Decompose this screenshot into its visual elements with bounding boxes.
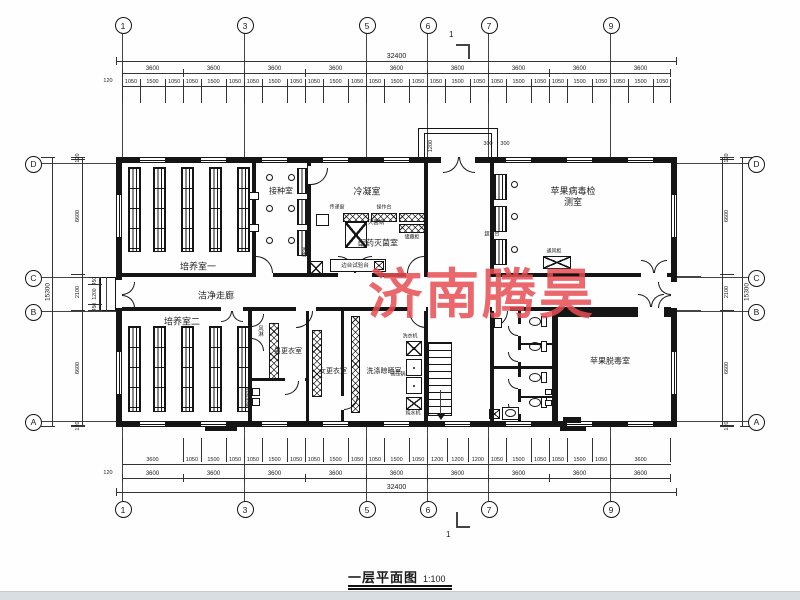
title-underline — [348, 585, 452, 587]
dimension-segment: 1050 — [165, 77, 183, 87]
door-opening — [338, 273, 372, 277]
dimension-value: 3600 — [634, 471, 647, 477]
culture-rack — [128, 326, 141, 412]
dimension-segment: 3600 — [610, 469, 671, 479]
grid-bubble-top: 6 — [420, 17, 437, 34]
window — [567, 157, 592, 163]
dimension-value: 15300 — [45, 283, 52, 301]
grid-bubble-top: 3 — [237, 17, 254, 34]
stool — [288, 205, 295, 212]
dimension-value: 300 — [483, 141, 492, 147]
dimension-value: 1050 — [491, 79, 503, 85]
locker-women — [312, 330, 322, 397]
grid-bubble-bottom: 5 — [359, 501, 376, 518]
equipment-label-washer: 洗衣机 — [402, 333, 417, 340]
dimension-value: 1050 — [247, 457, 259, 463]
men-change-door-arc — [285, 381, 299, 395]
dimension-value: 1050 — [595, 457, 607, 463]
dimension-value: 1050 — [229, 457, 241, 463]
dimension-value: 1050 — [290, 457, 302, 463]
grid-bubble-top: 7 — [481, 17, 498, 34]
room-label-condensing: 冷凝室 — [353, 185, 380, 198]
equipment-label-storage-cabinet: 储藏柜 — [404, 234, 419, 241]
pass-window-box — [316, 214, 329, 226]
dimension-column: 120660021006600120 — [74, 157, 82, 427]
dimension-value: 1050 — [351, 457, 363, 463]
grid-bubble-bottom: 3 — [237, 501, 254, 518]
inoculation-door-arc — [256, 256, 273, 273]
dimension-segment: 1050 — [183, 77, 201, 87]
stair-arrow-head — [437, 414, 445, 420]
dimension-segment: 3600 — [122, 455, 183, 465]
dimension-segment: 3600 — [366, 64, 427, 74]
dimension-value: 3600 — [268, 471, 281, 477]
dimension-segment: 1050 — [409, 455, 427, 465]
dimension-value: 450 — [92, 303, 98, 311]
dimension-row: 3600105015001050105015001050105015001050… — [122, 455, 671, 464]
dimension-segment: 1500 — [201, 77, 226, 87]
dimension-segment: 1050 — [610, 77, 628, 87]
window — [262, 421, 287, 427]
room-label-air-shower: 风淋 — [256, 326, 264, 337]
dimension-segment: 1050 — [226, 77, 244, 87]
dimension-segment: 3600 — [427, 64, 488, 74]
dimension-segment: 3600 — [427, 469, 488, 479]
dimension-value: 3600 — [634, 457, 646, 463]
pass-through-window — [249, 224, 259, 232]
dimension-segment: 2100 — [74, 274, 83, 310]
dimension-value: 15300 — [744, 283, 751, 301]
prep-bench — [399, 213, 425, 222]
dimension-segment: 120 — [74, 425, 83, 427]
wall-toilet-middle — [493, 366, 552, 369]
section-mark-bottom: 1 — [446, 530, 450, 539]
hand-sanitizer-unit — [252, 388, 260, 396]
grid-bubble-top: 5 — [359, 17, 376, 34]
dimension-segment: 1500 — [506, 77, 531, 87]
window — [262, 157, 287, 163]
dimension-segment: 1500 — [201, 455, 226, 465]
window — [506, 157, 531, 163]
hand-sanitizer-unit — [252, 398, 260, 406]
dimension-segment: 1050 — [122, 77, 140, 87]
dimension-segment: 3600 — [549, 64, 610, 74]
dimension-segment: 1050 — [653, 77, 671, 87]
dimension-value: 1200 — [472, 457, 484, 463]
dimension-column: 15300 — [44, 157, 52, 427]
equipment-label-sterilizer: 灭菌锅 — [368, 218, 385, 226]
equipment-label-pass-window: 传递窗 — [329, 204, 344, 211]
stall-door-arc — [508, 352, 518, 362]
dimension-value: 1500 — [512, 457, 524, 463]
stall-door-arc — [508, 379, 518, 389]
dimension-value: 1050 — [290, 79, 302, 85]
east-porch-line — [677, 310, 701, 311]
dimension-value: 120 — [75, 421, 81, 430]
grid-bubble-bottom: 7 — [481, 501, 498, 518]
dimension-value: 1500 — [268, 457, 280, 463]
dimension-value: 1050 — [491, 457, 503, 463]
section-flag-bottom — [456, 526, 470, 528]
dimension-segment: 3600 — [183, 469, 244, 479]
exterior-stoop — [205, 427, 237, 431]
room-label-virus-free: 苹果脱毒室 — [590, 356, 630, 367]
dimension-segment: 1050 — [592, 455, 610, 465]
dimension-segment: 32400 — [116, 483, 677, 493]
dimension-value: 1500 — [268, 79, 280, 85]
dimension-value: 3600 — [512, 471, 525, 477]
virus-free-door-arc — [638, 294, 651, 307]
dimension-segment: 1500 — [384, 77, 409, 87]
clean-bench-unit — [494, 174, 507, 200]
dimension-value: 3600 — [573, 471, 586, 477]
culture-rack — [181, 326, 194, 412]
toilet-bowl — [529, 342, 541, 351]
drawing-title: 一层平面图 — [348, 570, 418, 585]
window — [445, 421, 470, 427]
dimension-segment: 1500 — [262, 77, 287, 87]
grid-bubble-right: C — [748, 270, 765, 287]
dimension-value: 3600 — [329, 471, 342, 477]
dimension-value: 3600 — [390, 66, 403, 72]
dimension-segment: 1200 — [468, 455, 488, 465]
grid-bubble-right: B — [748, 304, 765, 321]
dimension-segment: 1050 — [348, 455, 366, 465]
dimension-row: 360036003600360036003600360036003600 — [122, 469, 671, 478]
door-opening — [256, 273, 273, 277]
dimension-column: 15300 — [742, 157, 750, 427]
window — [116, 195, 122, 237]
condensing-door-arc — [311, 168, 328, 185]
drawing-scale: 1:100 — [423, 574, 446, 584]
dimension-value: 1050 — [430, 79, 442, 85]
door-opening — [518, 350, 521, 362]
air-shower-curve — [251, 338, 264, 351]
autoclave-unit — [406, 377, 422, 394]
dimension-value: 1500 — [635, 79, 647, 85]
room-label-inoculation: 接种室 — [269, 186, 293, 197]
dimension-value: 3600 — [268, 66, 281, 72]
window — [628, 157, 653, 163]
water-purifier-unit — [406, 397, 422, 410]
dimension-segment: 1200 — [91, 284, 100, 303]
room-label-virus-test: 苹果病毒检测室 — [550, 186, 596, 209]
room-label-men-change: 男更衣室 — [274, 346, 302, 356]
dimension-segment: 450 — [91, 304, 100, 311]
virus-free-door-arc — [651, 294, 664, 307]
dimension-edge: 120 — [103, 470, 112, 476]
equipment-label-bench-top: 操作台 — [376, 204, 391, 211]
dimension-segment: 3600 — [244, 469, 305, 479]
west-exit-door-arc — [122, 282, 135, 295]
prep-bench — [343, 213, 369, 222]
dimension-value: 1050 — [308, 457, 320, 463]
toilet-bowl — [529, 373, 541, 382]
dimension-value: 1500 — [451, 79, 463, 85]
dimension-segment: 1500 — [262, 455, 287, 465]
dimension-row: 32400 — [116, 483, 677, 492]
title-underline-2 — [348, 588, 452, 590]
door-opening — [641, 273, 667, 277]
culture-rack — [181, 167, 194, 252]
dimension-value: 3600 — [207, 471, 220, 477]
wash-room-shelf — [351, 316, 360, 413]
dimension-segment: 1050 — [244, 77, 262, 87]
dimension-value: 6600 — [75, 361, 81, 373]
dimension-segment: 450 — [91, 277, 100, 284]
dimension-value: 3600 — [573, 66, 586, 72]
dimension-segment: 3600 — [488, 64, 549, 74]
dimension-segment: 1050 — [531, 77, 549, 87]
toilet-tank — [541, 341, 547, 352]
dimension-value: 120 — [724, 421, 730, 430]
stool — [511, 181, 518, 188]
dimension-value: 1500 — [573, 79, 585, 85]
grid-bubble-top: 9 — [603, 17, 620, 34]
dimension-value: 3600 — [207, 66, 220, 72]
dimension-value: 2100 — [75, 286, 81, 298]
room-label-prep: 配药灭菌室 — [358, 238, 398, 249]
dimension-segment: 3600 — [305, 64, 366, 74]
dimension-value: 1500 — [573, 457, 585, 463]
dimension-segment: 3600 — [366, 469, 427, 479]
dimension-value: 1050 — [552, 457, 564, 463]
stool — [288, 237, 295, 244]
dimension-value: 1050 — [125, 79, 137, 85]
dimension-value: 1050 — [534, 457, 546, 463]
exterior-stoop — [560, 427, 586, 431]
dimension-value: 3600 — [146, 66, 159, 72]
dimension-value: 1050 — [186, 457, 198, 463]
dimension-value: 1050 — [351, 79, 363, 85]
dimension-value: 3600 — [512, 66, 525, 72]
floor-plan-sheet: 3240036003600360036003600360036003600360… — [0, 0, 800, 600]
west-exit-door-arc — [122, 295, 135, 308]
dimension-value: 6600 — [724, 210, 730, 222]
dimension-value: 1050 — [613, 79, 625, 85]
dimension-value: 6600 — [75, 210, 81, 222]
window — [116, 352, 122, 394]
equipment-label-clean-bench: 超净台 — [484, 231, 499, 238]
dimension-segment: 1050 — [226, 455, 244, 465]
dimension-segment: 1500 — [567, 77, 592, 87]
dimension-segment: 3600 — [610, 64, 671, 74]
dimension-value: 1050 — [412, 457, 424, 463]
dimension-segment: 1500 — [567, 455, 592, 465]
dimension-segment: 1500 — [140, 77, 165, 87]
dimension-value: 1500 — [390, 79, 402, 85]
window — [384, 421, 409, 427]
dimension-segment: 120 — [722, 425, 731, 427]
dimension-segment: 1050 — [366, 77, 384, 87]
entrance-door-arc — [459, 157, 475, 173]
grid-bubble-left: C — [25, 270, 42, 287]
washer-unit — [406, 341, 422, 356]
door-opening — [638, 311, 664, 317]
dimension-segment: 1500 — [628, 77, 653, 87]
culture2-door-arc — [232, 311, 243, 322]
room-label-culture1: 培养室一 — [180, 260, 216, 273]
dimension-value: 1050 — [552, 79, 564, 85]
dimension-segment: 1050 — [305, 455, 323, 465]
grid-bubble-right: D — [748, 156, 765, 173]
window — [201, 157, 226, 163]
culture-rack — [153, 326, 166, 412]
dimension-value: 3600 — [146, 457, 158, 463]
dimension-segment: 1050 — [470, 77, 488, 87]
equipment-label-hand-sanitizer: 手消毒器 — [244, 388, 251, 408]
door-opening — [671, 282, 677, 308]
dimension-value: 2100 — [724, 286, 730, 298]
clean-bench-unit — [494, 206, 507, 232]
grid-bubble-left: A — [25, 414, 42, 431]
dimension-value: 1050 — [186, 79, 198, 85]
west-porch — [100, 277, 116, 311]
stair-arrow-stem — [440, 390, 441, 416]
sink-unit — [309, 261, 323, 276]
dimension-segment: 3600 — [183, 64, 244, 74]
culture2-door-arc — [221, 311, 232, 322]
dimension-value: 1500 — [146, 79, 158, 85]
dimension-value: 1500 — [207, 457, 219, 463]
dimension-value: 1050 — [412, 79, 424, 85]
dimension-value: 1200 — [431, 457, 443, 463]
dimension-segment: 1200 — [427, 455, 447, 465]
change-room-door-arc — [296, 311, 313, 328]
dimension-segment: 15300 — [742, 157, 751, 427]
virus-test-door-arc — [641, 260, 654, 273]
stool — [266, 205, 273, 212]
pass-through-window — [249, 192, 259, 200]
equipment-label-side-bench: 边台试验台 — [341, 261, 369, 269]
dimension-segment: 1050 — [427, 77, 445, 87]
dimension-segment: 1500 — [323, 455, 348, 465]
section-mark-top: 1 — [449, 30, 453, 39]
virus-free-sill — [563, 417, 581, 423]
window — [323, 157, 348, 163]
west-porch-step — [106, 277, 107, 311]
dimension-segment: 3600 — [122, 64, 183, 74]
dimension-value: 1050 — [656, 79, 668, 85]
dimension-segment: 15300 — [44, 157, 53, 427]
dimension-value: 3600 — [146, 471, 159, 477]
dimension-segment: 6600 — [74, 159, 83, 274]
dimension-segment: 1050 — [549, 455, 567, 465]
stool — [288, 174, 295, 181]
stool — [511, 213, 518, 220]
dimension-segment: 6600 — [722, 159, 731, 274]
dimension-segment: 1500 — [323, 77, 348, 87]
east-porch-line — [677, 276, 701, 277]
dimension-value: 1200 — [92, 288, 98, 299]
east-exit-door-arc — [658, 282, 671, 295]
dimension-value: 1050 — [247, 79, 259, 85]
culture-rack — [153, 167, 166, 252]
toilet-bowl — [529, 398, 541, 407]
dimension-segment: 1050 — [183, 455, 201, 465]
dimension-segment: 1050 — [366, 455, 384, 465]
room-label-women-change: 女更衣室 — [319, 366, 347, 376]
dimension-value: 6600 — [724, 361, 730, 373]
dimension-segment: 3600 — [549, 469, 610, 479]
entrance-door-arc — [443, 157, 459, 173]
dimension-segment: 3600 — [244, 64, 305, 74]
grid-bubble-left: B — [25, 304, 42, 321]
window — [671, 195, 677, 237]
dimension-value: 1050 — [369, 457, 381, 463]
dimension-segment: 1050 — [488, 77, 506, 87]
watermark-text: 济南腾昊 — [368, 250, 596, 329]
dimension-value: 1050 — [473, 79, 485, 85]
dimension-segment: 1050 — [287, 77, 305, 87]
culture-rack — [237, 167, 250, 252]
dimension-value: 1500 — [207, 79, 219, 85]
door-opening — [518, 377, 521, 389]
culture-rack — [209, 167, 222, 252]
culture-rack — [209, 326, 222, 412]
dimension-value: 1050 — [308, 79, 320, 85]
dimension-segment: 1050 — [348, 77, 366, 87]
dimension-value: 1500 — [390, 457, 402, 463]
inoculation-bench — [297, 199, 307, 225]
window — [628, 421, 653, 427]
storage-cabinet-unit — [399, 224, 425, 233]
dimension-value: 3600 — [634, 66, 647, 72]
grid-bubble-bottom: 6 — [420, 501, 437, 518]
grid-bubble-right: A — [748, 414, 765, 431]
wall-sink — [545, 400, 552, 406]
dimension-column: 120660021006600120 — [722, 157, 730, 427]
dimension-segment: 6600 — [722, 310, 731, 425]
inoculation-bench — [297, 168, 307, 194]
dimension-segment: 32400 — [116, 52, 677, 62]
equipment-label-sink: 洗槽 — [301, 247, 308, 257]
dimension-segment: 1050 — [409, 77, 427, 87]
stool — [266, 174, 273, 181]
stool — [266, 237, 273, 244]
dimension-value: 1050 — [595, 79, 607, 85]
window — [506, 421, 531, 427]
dimension-value: 300 — [500, 141, 509, 147]
entrance-vestibule-inner — [424, 133, 492, 157]
dimension-segment: 1050 — [549, 77, 567, 87]
virus-test-door-arc — [654, 260, 667, 273]
dimension-value: 1050 — [534, 79, 546, 85]
grid-bubble-top: 1 — [115, 17, 132, 34]
dimension-segment: 1050 — [592, 77, 610, 87]
equipment-label-autoclave: 高压锅 — [390, 371, 405, 378]
dimension-value: 1500 — [512, 79, 524, 85]
toilet-sink — [489, 409, 500, 419]
dimension-segment: 3600 — [122, 469, 183, 479]
dimension-value: 3600 — [451, 471, 464, 477]
dimension-segment: 1050 — [305, 77, 323, 87]
dimension-segment: 1500 — [384, 455, 409, 465]
dimension-segment: 3600 — [610, 455, 671, 465]
dimension-row: 360036003600360036003600360036003600 — [122, 64, 671, 73]
grid-bubble-left: D — [25, 156, 42, 173]
autoclave-unit — [406, 359, 422, 376]
dimension-segment: 6600 — [74, 310, 83, 425]
dimension-value: 3600 — [390, 471, 403, 477]
dimension-value: 1200 — [428, 140, 434, 152]
wall-change-divider — [306, 311, 309, 421]
room-label-culture2: 培养室二 — [164, 315, 200, 328]
equipment-label-water-purifier: 纯水机 — [405, 410, 420, 417]
dimension-segment: 2100 — [722, 274, 731, 310]
wall-sink — [545, 389, 552, 395]
dimension-value: 32400 — [387, 53, 406, 60]
